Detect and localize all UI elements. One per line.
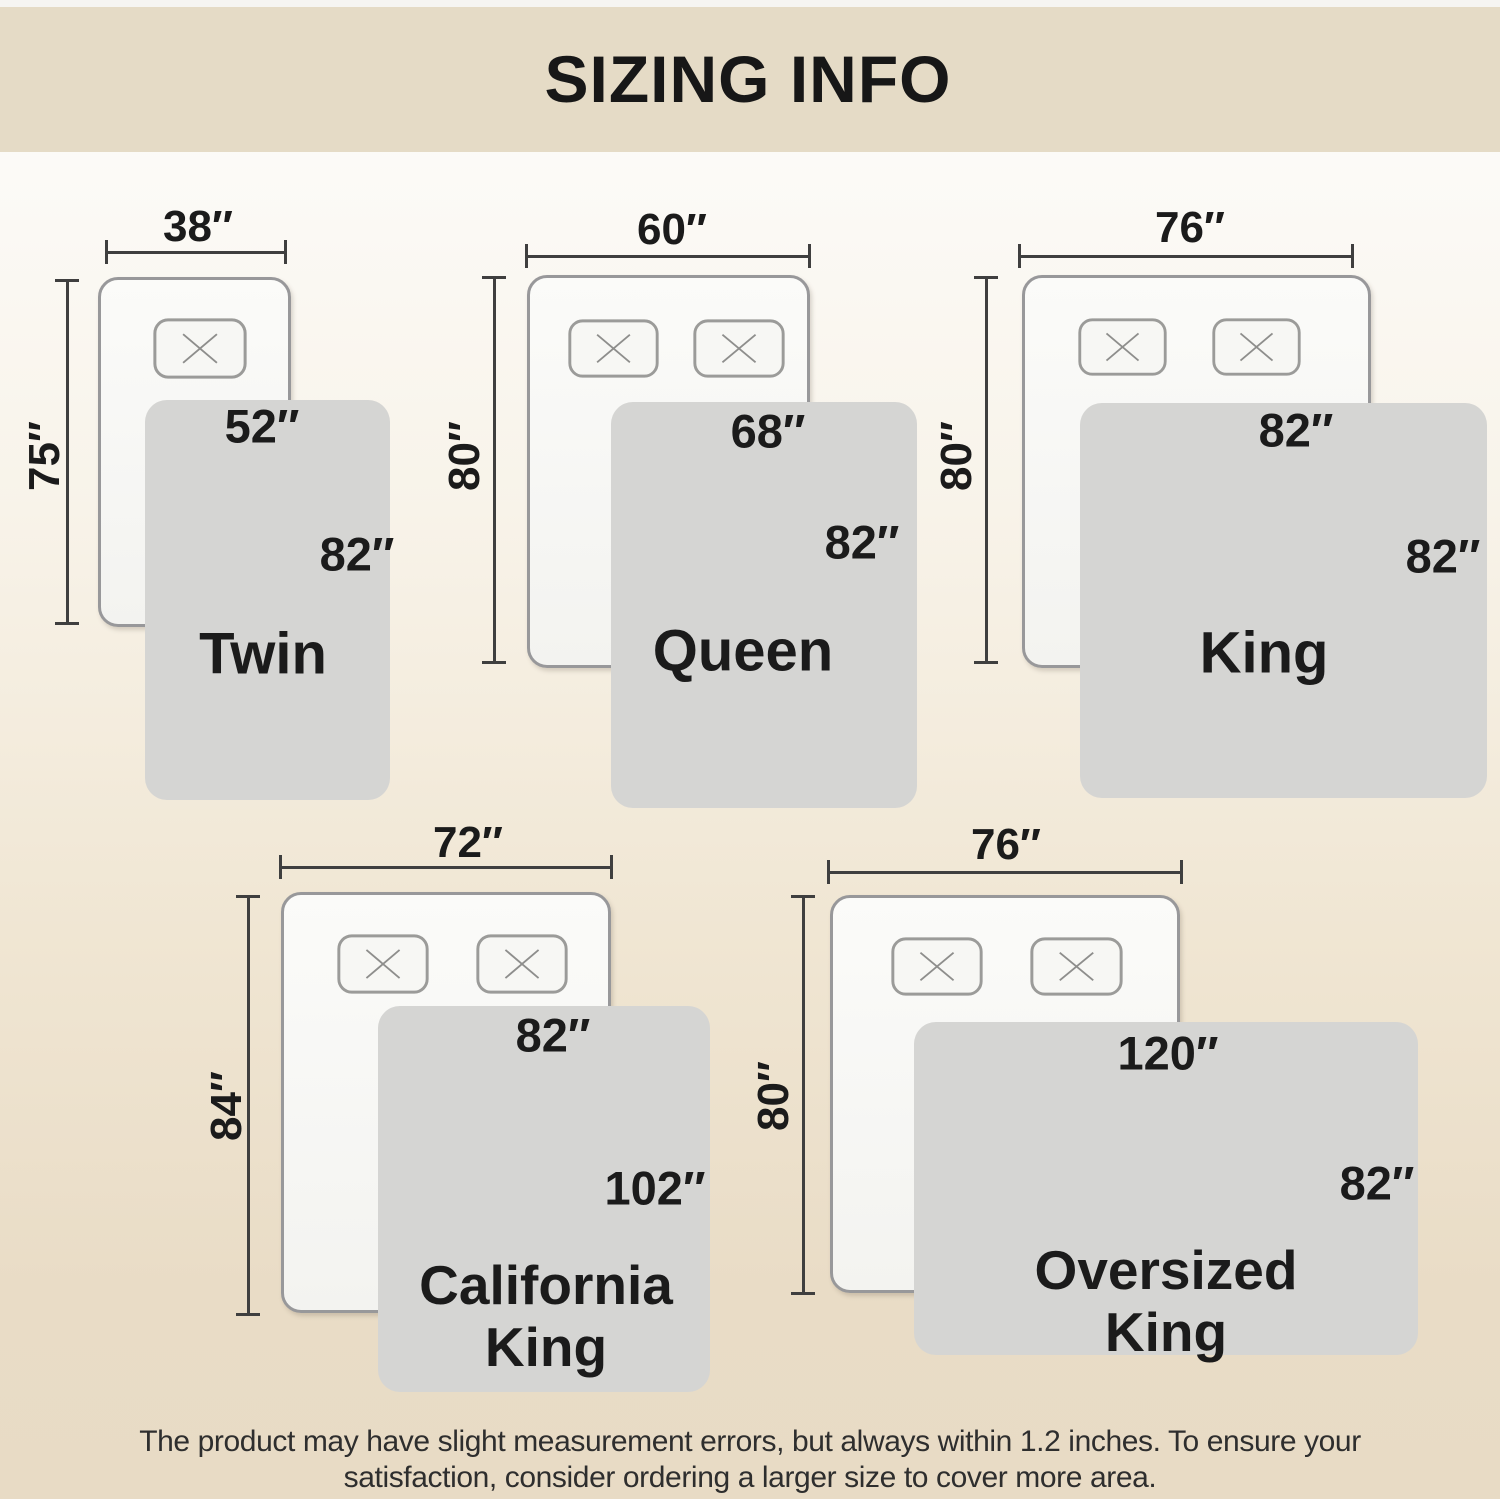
blanket	[145, 400, 390, 800]
size-name-line2: King	[1035, 1301, 1298, 1363]
pillow-icon	[568, 319, 659, 378]
pillow-icon	[337, 934, 429, 994]
size-name-label: King	[1200, 620, 1329, 687]
size-name-line1: Oversized	[1035, 1239, 1298, 1301]
dimension-tick	[610, 855, 613, 879]
dimension-tick	[284, 240, 287, 264]
page-title: SIZING INFO	[545, 41, 952, 117]
bed-width-label: 76″	[1155, 203, 1225, 253]
size-name-label: Queen	[653, 618, 834, 685]
blanket-length-label: 82″	[825, 515, 900, 570]
bed-length-label: 80″	[932, 421, 982, 491]
dimension-tick	[105, 240, 108, 264]
pillow-icon	[1078, 318, 1167, 376]
length-dimension-line	[493, 278, 496, 663]
size-name-line2: King	[419, 1316, 673, 1378]
dimension-tick	[791, 1292, 815, 1295]
width-dimension-line	[829, 871, 1182, 874]
blanket-length-label: 82″	[1340, 1156, 1415, 1211]
pillow-icon	[693, 319, 785, 378]
bed-width-label: 72″	[433, 818, 503, 868]
disclaimer-line2: satisfaction, consider ordering a larger…	[139, 1460, 1361, 1496]
length-dimension-line	[802, 897, 805, 1294]
blanket-width-label: 52″	[225, 399, 300, 454]
dimension-tick	[55, 622, 79, 625]
disclaimer-line1: The product may have slight measurement …	[139, 1424, 1361, 1460]
dimension-tick	[236, 895, 260, 898]
bed-length-label: 80″	[749, 1061, 799, 1131]
bed-width-label: 76″	[971, 820, 1041, 870]
blanket-length-label: 82″	[320, 527, 395, 582]
pillow-icon	[476, 934, 568, 994]
width-dimension-line	[1020, 255, 1353, 258]
pillow-icon	[1212, 318, 1301, 376]
bed-width-label: 38″	[163, 202, 233, 252]
pillow-icon	[153, 318, 247, 379]
dimension-tick	[1351, 244, 1354, 268]
blanket-length-label: 102″	[605, 1161, 706, 1216]
size-name-line1: California	[419, 1254, 673, 1316]
blanket-width-label: 68″	[731, 404, 806, 459]
blanket-width-label: 120″	[1118, 1026, 1219, 1081]
size-name-label: CaliforniaKing	[419, 1254, 673, 1378]
size-name-label: Twin	[199, 621, 327, 688]
bed-width-label: 60″	[637, 205, 707, 255]
pillow-icon	[891, 937, 983, 996]
dimension-tick	[791, 895, 815, 898]
blanket-width-label: 82″	[516, 1008, 591, 1063]
bed-length-label: 84″	[202, 1071, 252, 1141]
dimension-tick	[808, 244, 811, 268]
dimension-tick	[1180, 860, 1183, 884]
pillow-icon	[1030, 937, 1123, 996]
dimension-tick	[482, 661, 506, 664]
length-dimension-line	[985, 278, 988, 663]
dimension-tick	[974, 276, 998, 279]
dimension-tick	[525, 244, 528, 268]
disclaimer-text: The product may have slight measurement …	[139, 1424, 1361, 1496]
dimension-tick	[482, 276, 506, 279]
dimension-tick	[279, 855, 282, 879]
dimension-tick	[55, 279, 79, 282]
dimension-tick	[236, 1313, 260, 1316]
blanket-width-label: 82″	[1259, 403, 1334, 458]
blanket	[1080, 403, 1487, 798]
dimension-tick	[827, 860, 830, 884]
blanket	[611, 402, 917, 808]
dimension-tick	[974, 661, 998, 664]
bed-length-label: 80″	[440, 421, 490, 491]
width-dimension-line	[527, 255, 810, 258]
dimension-tick	[1018, 244, 1021, 268]
sizing-infographic: SIZING INFO 38″ 75″ 52″ 82″ Twin 60″ 80″…	[0, 0, 1500, 1499]
blanket-length-label: 82″	[1406, 529, 1481, 584]
size-name-label: OversizedKing	[1035, 1239, 1298, 1363]
top-edge-strip	[0, 0, 1500, 7]
bed-length-label: 75″	[20, 421, 70, 491]
